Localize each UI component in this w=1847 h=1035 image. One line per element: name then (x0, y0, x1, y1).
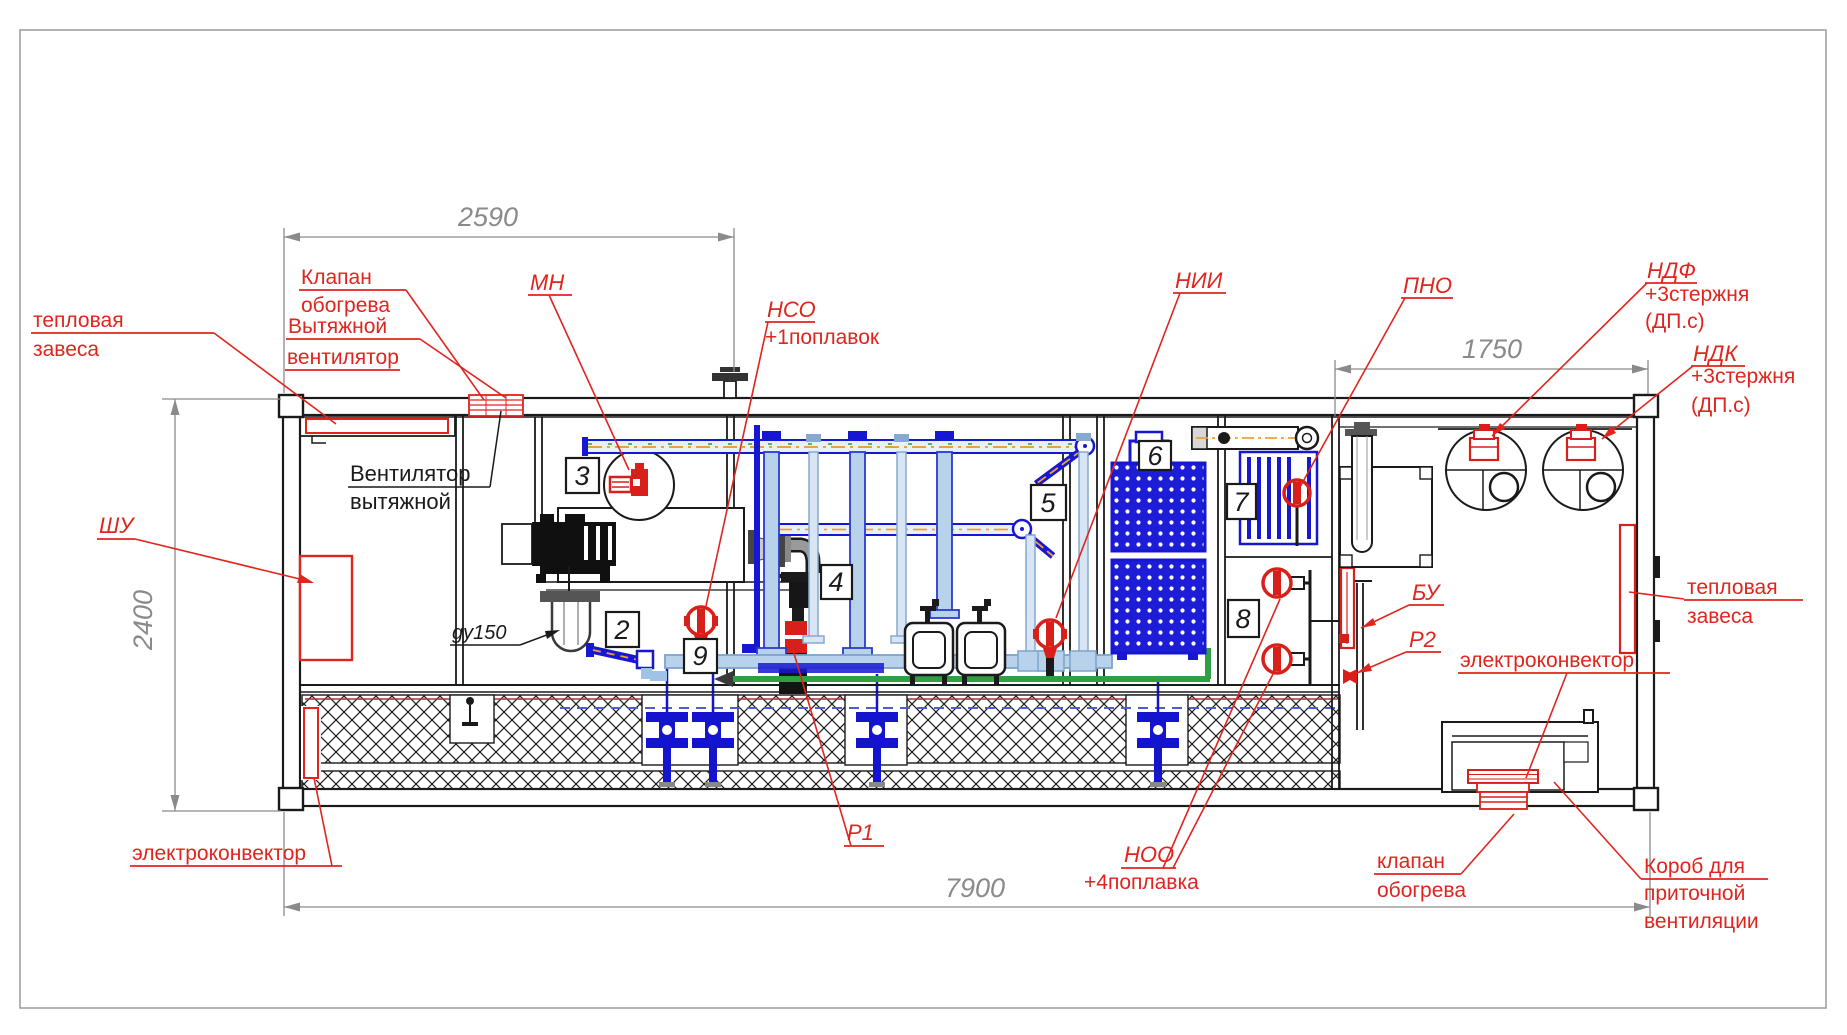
section-box-4: 4 (821, 565, 852, 599)
standpipe (1352, 436, 1372, 552)
label-ndf: НДФ (1647, 258, 1696, 283)
label-ndk: НДК (1693, 341, 1738, 366)
label-heat-curtain-left: тепловая (33, 309, 124, 332)
section-number: 4 (828, 567, 843, 597)
label-electric-convector-left: электроконвектор (132, 842, 306, 865)
label-exhaust-fan-red-2: вентилятор (287, 346, 399, 369)
label-heat-valve-bottom-2: обогрева (1377, 879, 1466, 902)
label-du150: gy150 (452, 622, 507, 644)
section-number: 5 (1040, 488, 1056, 518)
dim-7900: 7900 (945, 873, 1005, 903)
label-r1: Р1 (847, 820, 874, 845)
label-ndf-note2: (ДП.с) (1645, 310, 1705, 333)
corner-casting (1634, 788, 1658, 810)
section-number: 8 (1235, 604, 1250, 634)
roof-heating-valve (469, 395, 523, 416)
dim-2590: 2590 (457, 202, 518, 232)
label-noo-note: +4поплавка (1084, 871, 1199, 894)
section-box-7: 7 (1227, 484, 1256, 519)
label-nso: НСО (767, 297, 816, 322)
corner-casting (279, 395, 303, 417)
label-ndk-note2: (ДП.с) (1691, 394, 1751, 417)
label-noo: НОО (1124, 842, 1174, 867)
label-ndf-note1: +3стержня (1645, 283, 1749, 306)
control-cabinet-shu (300, 556, 352, 660)
label-supply-duct: Короб для (1644, 855, 1745, 878)
screw-device (1192, 427, 1318, 449)
dim-2400: 2400 (128, 590, 158, 651)
drawing-canvas: 2590 1750 2400 7900 тепловая завеса Клап… (0, 0, 1847, 1035)
label-exhaust-fan-black: Вентилятор (350, 461, 470, 486)
section-box-8: 8 (1228, 600, 1259, 637)
label-heat-curtain-right: тепловая (1687, 576, 1778, 599)
label-pno: ПНО (1403, 273, 1452, 298)
door-hinge (1654, 620, 1660, 642)
electric-convector-right-unit (1468, 770, 1538, 783)
heat-valve-bottom-unit (1480, 792, 1527, 809)
label-exhaust-fan-red: Вытяжной (288, 315, 387, 338)
label-supply-duct-2: приточной (1644, 882, 1745, 905)
label-nii: НИИ (1175, 268, 1223, 293)
label-heat-valve-bottom: клапан (1377, 850, 1445, 873)
heat-curtain-right-unit (1620, 525, 1635, 653)
section-number: 3 (574, 461, 589, 491)
door-hinge (1654, 556, 1660, 578)
heat-curtain-left-unit (306, 419, 448, 433)
p1-sensor (785, 621, 807, 635)
label-electric-convector-right: электроконвектор (1460, 649, 1634, 672)
electric-convector-left-unit (301, 706, 321, 780)
section-box-6: 6 (1139, 441, 1171, 471)
label-ndk-note1: +3стержня (1691, 365, 1795, 388)
section-box-2: 2 (606, 612, 639, 647)
section-number: 2 (613, 615, 629, 645)
corner-casting (279, 788, 303, 810)
label-r2: Р2 (1409, 627, 1436, 652)
mn-pump (604, 450, 674, 520)
label-heat-curtain-right-2: завеса (1687, 605, 1753, 628)
section-box-5: 5 (1031, 485, 1066, 520)
blower-motor (532, 522, 616, 566)
container-unit-drawing: 2590 1750 2400 7900 тепловая завеса Клап… (0, 0, 1847, 1035)
label-mn: МН (530, 270, 564, 295)
section-number: 9 (692, 641, 707, 671)
label-shu: ШУ (99, 513, 135, 538)
section-number: 7 (1233, 487, 1249, 517)
section-number: 6 (1147, 441, 1163, 471)
section-box-9: 9 (684, 639, 717, 673)
label-heat-curtain-left-2: завеса (33, 338, 99, 361)
label-exhaust-fan-black-2: вытяжной (350, 489, 451, 514)
label-bu: БУ (1412, 580, 1441, 605)
label-nso-note: +1поплавок (765, 326, 880, 349)
label-heat-valve-top-2: обогрева (301, 294, 390, 317)
label-heat-valve-top: Клапан (301, 266, 372, 289)
dim-1750: 1750 (1462, 334, 1522, 364)
corner-casting (1634, 395, 1658, 417)
label-supply-duct-3: вентиляции (1644, 910, 1759, 933)
section-box-3: 3 (566, 458, 599, 493)
